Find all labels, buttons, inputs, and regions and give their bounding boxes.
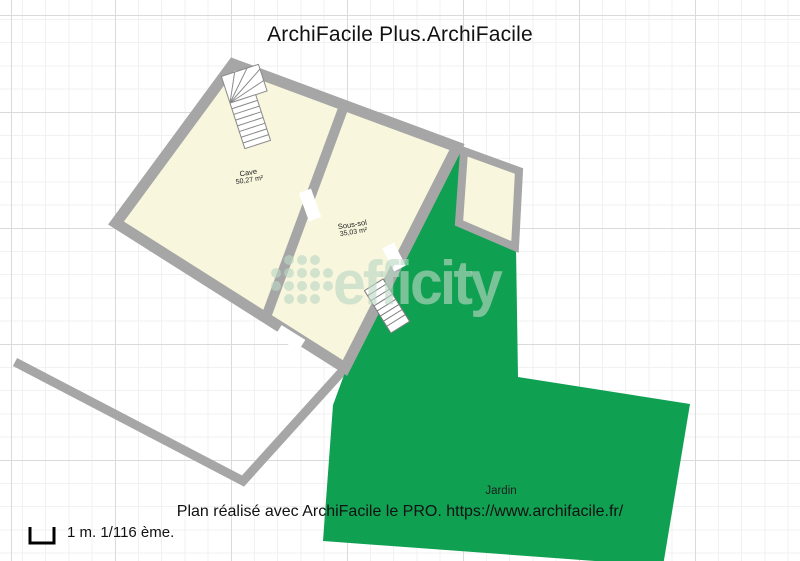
scale-label: 1 m. 1/116 ème. xyxy=(67,524,174,541)
scale-indicator: 1 m. 1/116 ème. xyxy=(26,524,174,541)
page-title: ArchiFacile Plus.ArchiFacile xyxy=(0,23,800,47)
floorplan-page: efficity ArchiFacile Plus.ArchiFacile Ca… xyxy=(0,0,800,561)
boundary-wall xyxy=(15,362,347,481)
jardin-label: Jardin xyxy=(461,485,541,497)
floorplan-canvas xyxy=(0,0,800,561)
credit-line: Plan réalisé avec ArchiFacile le PRO. ht… xyxy=(0,503,800,521)
